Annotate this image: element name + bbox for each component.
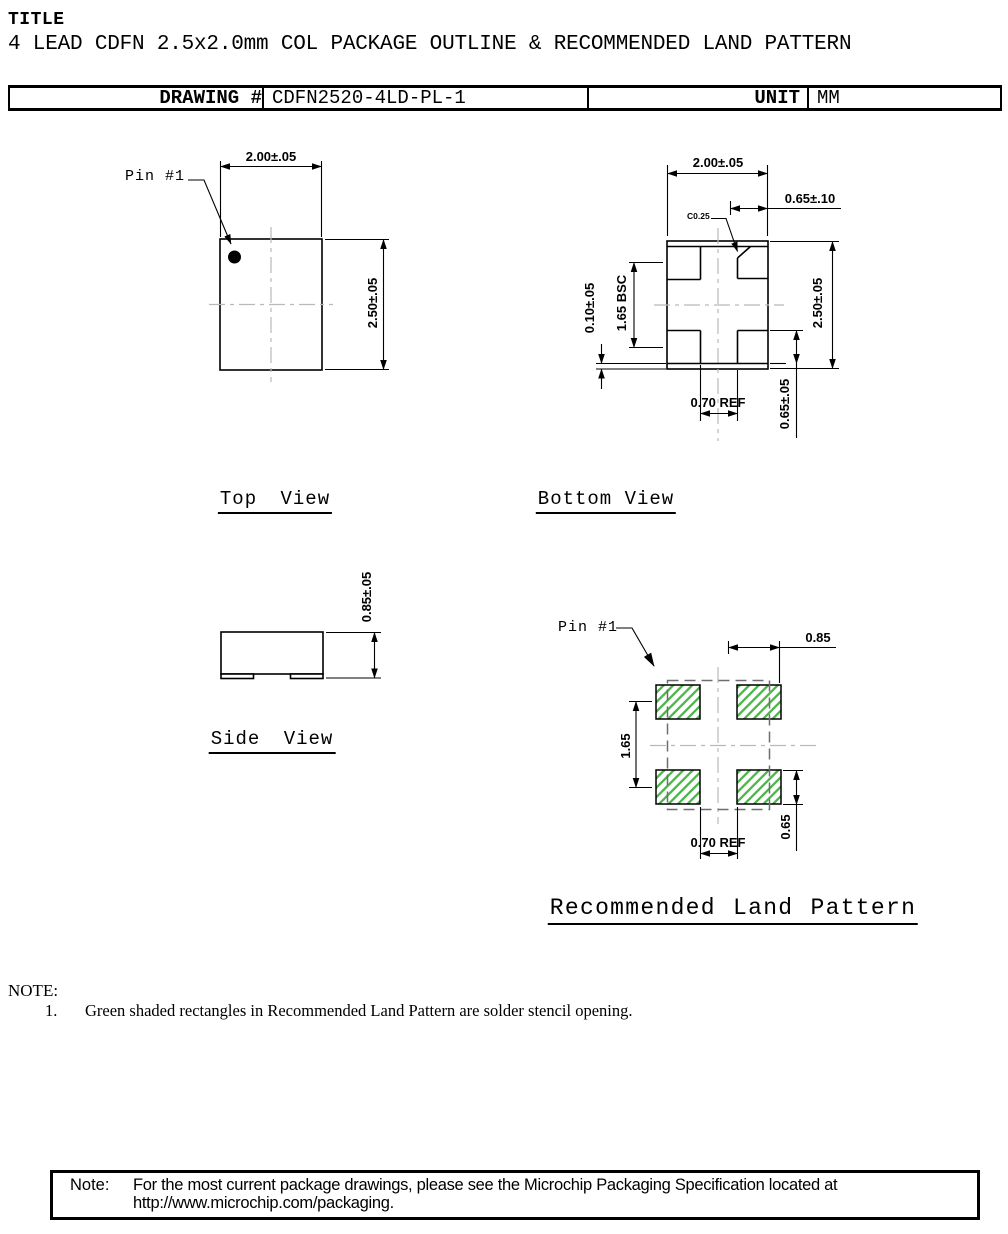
pin1-leader-line — [188, 180, 231, 244]
side-view-right-terminal — [291, 674, 324, 679]
bottom-view-height-dim-text: 2.50±.05 — [811, 238, 827, 368]
top-view-caption: Top View — [218, 488, 332, 514]
side-view-drawing — [221, 632, 381, 679]
land-pattern-drawing — [616, 628, 836, 859]
package-outline-sheet: TITLE 4 LEAD CDFN 2.5x2.0mm COL PACKAGE … — [0, 0, 1008, 1234]
side-view-thickness-dim-text: 0.85±.05 — [360, 532, 376, 662]
solder-pad-top-right — [737, 685, 781, 719]
footer-note-line2: http://www.microchip.com/packaging. — [133, 1194, 394, 1213]
land-pattern-pin1-label: Pin #1 — [558, 620, 618, 636]
pin1-index-dot — [228, 251, 241, 264]
note-item-number: 1. — [45, 1001, 57, 1021]
drawing-canvas — [0, 0, 1008, 1234]
pad-width-dim-text: 0.85 — [773, 631, 863, 645]
solder-pad-bottom-right — [737, 770, 781, 804]
top-view-height-dim-text: 2.50±.05 — [366, 238, 382, 368]
terminal-length-dim-text: 0.65±.05 — [778, 339, 794, 469]
pad-length-dim-text: 0.65 — [779, 762, 795, 892]
pin1-leader-line — [616, 628, 654, 666]
side-view-body-outline — [221, 632, 323, 674]
terminal-width-dim-text: 0.65±.10 — [765, 192, 855, 206]
land-pattern-caption: Recommended Land Pattern — [548, 895, 918, 925]
pad-gap-dim-text: 0.70 REF — [673, 836, 763, 850]
solder-pad-bottom-left — [656, 770, 700, 804]
notes-heading: NOTE: — [8, 981, 58, 1001]
note-item-text: Green shaded rectangles in Recommended L… — [85, 1001, 633, 1021]
footer-note-label: Note: — [70, 1176, 109, 1195]
solder-pad-top-left — [656, 685, 700, 719]
top-view-width-dim-text: 2.00±.05 — [226, 150, 316, 164]
side-view-caption: Side View — [209, 728, 336, 754]
edge-gap-dim-text: 0.10±.05 — [583, 243, 599, 373]
bottom-view-width-dim-text: 2.00±.05 — [673, 156, 763, 170]
side-view-left-terminal — [221, 674, 254, 679]
top-view-pin1-label: Pin #1 — [125, 169, 185, 185]
footer-note-line1: For the most current package drawings, p… — [133, 1176, 837, 1195]
top-view-drawing — [188, 161, 389, 382]
terminal-pitch-dim-text: 1.65 BSC — [615, 238, 631, 368]
pad-pitch-dim-text: 1.65 — [619, 681, 635, 811]
bottom-view-center-gap-dim-text: 0.70 REF — [673, 396, 763, 410]
chamfer-label-text: C0.25 — [687, 212, 710, 221]
bottom-view-caption: Bottom View — [536, 488, 676, 514]
